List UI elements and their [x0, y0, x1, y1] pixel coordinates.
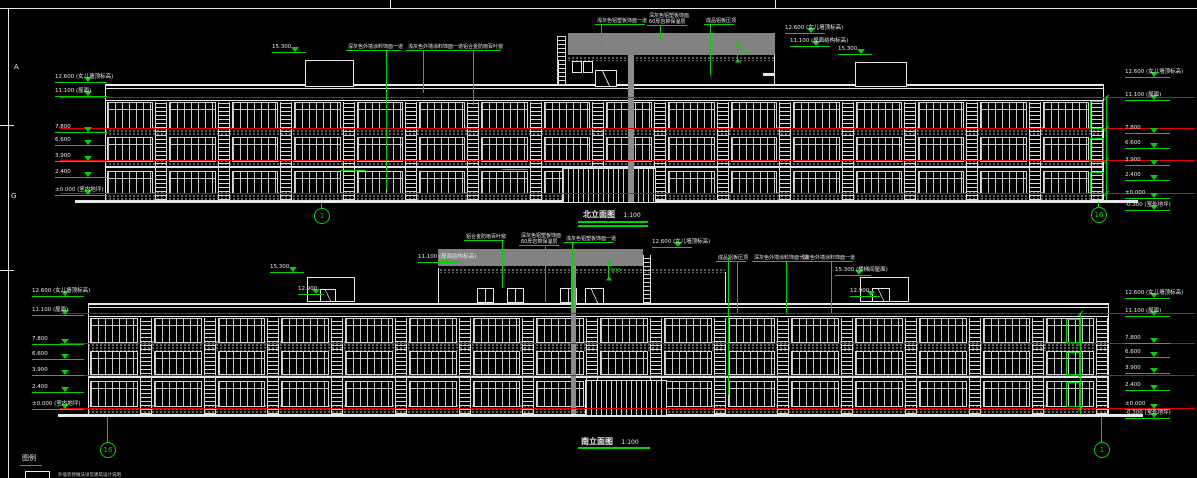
north-facade-window: [107, 102, 153, 129]
south-facade-louver-strip: [969, 318, 981, 414]
south-level-left-7-line: [32, 409, 84, 410]
south-facade-parapet-line-2: [88, 307, 1108, 308]
north-facade-window: [856, 137, 902, 162]
south-facade-window: [983, 318, 1031, 343]
north-facade-window: [107, 137, 153, 162]
north-title-scale: 1:100: [623, 212, 640, 219]
south-facade-window: [281, 351, 329, 375]
south-roofmark-parapet-line: [652, 247, 692, 248]
north-grid-bubble-right: 16: [1091, 207, 1107, 223]
frame-tick-left-1: [0, 125, 14, 126]
south-facade-window: [536, 318, 584, 343]
north-facade-window: [481, 102, 527, 129]
north-facade-window: [232, 102, 278, 129]
north-level-right-6-text: 2.400: [1125, 172, 1141, 178]
south-dim-block: [1066, 352, 1080, 375]
north-level-right-4-line: [1125, 148, 1170, 149]
south-level-left-2-line: [32, 315, 84, 316]
south-level-left-3-symbol: [61, 339, 69, 344]
north-level-left-6-text: 2.400: [55, 169, 71, 175]
south-level-left-5-line: [32, 375, 84, 376]
south-facade-window: [664, 318, 712, 343]
south-facade-window: [281, 318, 329, 343]
north-roof-dim-arrow-top: [735, 44, 741, 48]
north-annotation-left-3-leader-line: [473, 50, 474, 105]
north-level-left-4-symbol: [84, 140, 92, 145]
north-title: 北立面图 1:100: [583, 209, 641, 220]
north-facade-window: [980, 102, 1026, 129]
north-facade-window: [481, 171, 527, 194]
south-level-right-8-line: [1125, 418, 1170, 419]
north-level-left-7-line: [55, 195, 107, 196]
south-annotation-b-3-underline: [798, 261, 853, 262]
south-roofmark-roof-line: [418, 262, 458, 263]
south-grid-bubble-left-stem: [107, 417, 108, 442]
north-roof-hatch-strip: [568, 57, 775, 61]
north-roofmark-leftbox-symbol: [291, 47, 299, 52]
south-facade-window: [154, 381, 202, 407]
south-facade-window: [345, 351, 393, 375]
north-level-left-3-symbol: [84, 127, 92, 132]
north-facade-parapet-line-2: [105, 88, 1103, 89]
north-facade-window: [918, 102, 964, 129]
south-facade-window: [600, 318, 648, 343]
frame-left-line: [8, 8, 9, 478]
south-level-right-7-text: ±0.000: [1125, 401, 1145, 407]
south-annotation-b-1-leader-line: [737, 261, 738, 313]
north-facade-louver-strip: [530, 102, 542, 200]
south-facade-louver-strip: [140, 318, 152, 414]
north-level-right-7-line: [1125, 198, 1170, 199]
south-facade-louver-strip: [841, 318, 853, 414]
south-facade-window: [855, 318, 903, 343]
north-facade-window: [357, 102, 403, 129]
north-level-right-2-text: 11.100 (屋面): [1125, 92, 1161, 98]
south-roof-door: [585, 288, 604, 304]
north-annotation-center-3-text: 成品铝板压顶: [706, 18, 736, 24]
south-roofmark-rightbox-top-line: [835, 275, 871, 276]
north-facade-window: [980, 171, 1026, 194]
north-facade-window: [232, 137, 278, 162]
frame-tick-top-2: [775, 0, 776, 9]
south-grid-bubble-right-stem: [1101, 417, 1102, 442]
north-roof-tick: [763, 73, 775, 76]
north-level-right-5-symbol: [1150, 160, 1158, 165]
south-facade-window: [919, 351, 967, 375]
north-level-right-3-line: [1125, 133, 1170, 134]
south-facade-window: [90, 351, 138, 375]
south-annotation-b-1-underline: [716, 261, 746, 262]
north-facade-window: [419, 171, 465, 194]
south-grid-bubble-left: 16: [100, 442, 116, 458]
north-facade-window: [544, 102, 590, 129]
south-facade-window: [473, 381, 521, 407]
north-annotation-left-1-underline: [346, 50, 401, 51]
north-facade-window: [357, 137, 403, 162]
north-facade-window: [856, 171, 902, 194]
north-annotation-left-3-text: 铝合金防雨百叶窗: [463, 44, 503, 50]
south-facade-window: [409, 381, 457, 407]
south-title: 南立面图 1:100: [581, 436, 639, 447]
north-level-right-4-text: 6.600: [1125, 140, 1141, 146]
north-facade-left-edge: [105, 84, 106, 203]
south-level-right-3-symbol: [1150, 338, 1158, 343]
north-level-right-5-text: 3.900: [1125, 157, 1141, 163]
north-dim-chain-line: [1106, 96, 1107, 200]
south-roof-dim-value: 600: [611, 268, 621, 274]
south-roofmark-leftbox-top-text: 15.300: [270, 264, 289, 270]
frame-tick-left-2: [0, 270, 14, 271]
south-level-left-4-text: 6.600: [32, 351, 48, 357]
south-level-right-6-text: 2.400: [1125, 382, 1141, 388]
north-roof-window-2: [583, 61, 593, 73]
south-facade-level-line-red: [60, 408, 1195, 409]
south-title-scale: 1:100: [621, 439, 638, 446]
north-facade-window: [294, 102, 340, 129]
south-roofmark-leftbox-top-symbol: [289, 267, 297, 272]
north-facade-window: [668, 102, 714, 129]
north-facade-window: [668, 171, 714, 194]
south-facade-window: [536, 351, 584, 375]
south-roofmark-leftbox-door-line: [298, 294, 324, 295]
north-roof-door: [595, 70, 617, 87]
south-facade-floor-line: [88, 376, 1108, 378]
north-facade-louver-strip: [405, 102, 417, 200]
north-level-left-3-text: 7.800: [55, 124, 71, 130]
north-roof-box-left: [305, 60, 354, 87]
south-facade-window: [345, 381, 393, 407]
south-facade-window: [791, 318, 839, 343]
legend-underline: [20, 465, 42, 466]
south-entrance: [585, 380, 667, 416]
south-annotation-b-3-leader-line: [831, 261, 832, 313]
south-annotation-a-1-text: 铝合金防雨百叶窗: [466, 234, 506, 240]
south-facade-louver-strip: [777, 318, 789, 414]
south-level-left-6-symbol: [61, 387, 69, 392]
south-facade-level-line-red: [60, 375, 1195, 376]
south-annotation-b-1-text: 成品铝板压顶: [718, 255, 748, 261]
north-facade-window: [731, 171, 777, 194]
south-facade-window: [855, 351, 903, 375]
south-facade-window: [218, 381, 266, 407]
south-level-left-7-text: ±0.000 (室内地坪): [32, 401, 80, 407]
north-facade-window: [1043, 102, 1089, 129]
south-level-left-4-symbol: [61, 354, 69, 359]
frame-zone-label-a: A: [14, 64, 19, 70]
north-facade-window: [793, 171, 839, 194]
north-facade-window: [169, 137, 215, 162]
south-roof-window-2: [507, 288, 524, 303]
south-level-right-5-line: [1125, 373, 1170, 374]
north-roof-dim-arrow-bottom: [735, 59, 741, 63]
frame-tick-top-1: [390, 0, 391, 9]
north-facade-window: [793, 137, 839, 162]
south-level-left-1-line: [32, 296, 84, 297]
north-annotation-center-1-text: 浅灰色铝塑板饰面一道: [597, 18, 647, 24]
north-roofmark-parapet-line: [785, 33, 825, 34]
south-facade-window: [154, 351, 202, 375]
south-roof-dim-arrow-bottom: [606, 277, 612, 281]
north-facade-louver-strip: [343, 102, 355, 200]
south-level-right-5-text: 3.900: [1125, 365, 1141, 371]
north-grid-bubble-left: 1: [314, 208, 330, 224]
north-roofmark-roof-line: [790, 46, 830, 47]
south-title-underline: [578, 447, 650, 449]
north-roofmark-parapet-text: 12.600 (女儿墙顶标高): [785, 25, 843, 31]
south-level-right-6-symbol: [1150, 385, 1158, 390]
south-level-left-5-text: 3.900: [32, 367, 48, 373]
north-facade-level-line-red: [60, 128, 1195, 129]
north-facade-window: [169, 102, 215, 129]
north-roofmark-rightbox-symbol: [857, 49, 865, 54]
north-level-left-2-line: [55, 96, 107, 97]
south-facade-window: [664, 381, 712, 407]
south-facade-louver-strip: [905, 318, 917, 414]
south-facade-window: [90, 381, 138, 407]
south-level-right-2-line: [1125, 316, 1170, 317]
north-annotation-left-2-text: 浅灰色外墙涂料饰面一道: [408, 44, 463, 50]
south-level-left-6-text: 2.400: [32, 384, 48, 390]
south-facade-window: [791, 381, 839, 407]
north-title-underline-1: [578, 221, 648, 223]
north-facade-window: [856, 102, 902, 129]
south-roofmark-parapet-text: 12.600 (女儿墙顶标高): [652, 239, 710, 245]
south-level-right-8-text: -0.300 (室外地坪): [1125, 410, 1171, 416]
south-annotation-a-2-leader-line: [545, 245, 546, 302]
north-facade-window: [918, 137, 964, 162]
south-level-right-1-text: 12.600 (女儿墙顶标高): [1125, 290, 1183, 296]
south-facade-louver-strip: [331, 318, 343, 414]
north-facade-window: [918, 171, 964, 194]
north-level-right-8-text: -0.300 (室外地坪): [1125, 202, 1171, 208]
north-facade-louver-strip: [1029, 102, 1041, 200]
south-facade-window: [154, 318, 202, 343]
north-level-left-4-line: [55, 145, 107, 146]
north-level-right-3-text: 7.800: [1125, 125, 1141, 131]
south-level-left-1-text: 12.600 (女儿墙顶标高): [32, 288, 90, 294]
north-facade-window: [357, 171, 403, 194]
north-annotation-left-2-leader-line: [423, 50, 424, 93]
south-facade-window: [473, 318, 521, 343]
south-dim-chain-line: [1080, 313, 1081, 414]
south-roof-wall-right: [725, 272, 726, 303]
north-level-left-3-line: [55, 132, 107, 133]
south-level-right-2-text: 11.100 (屋面): [1125, 308, 1161, 314]
south-facade-louver-strip: [395, 318, 407, 414]
frame-top-line: [0, 8, 1197, 9]
north-facade-window: [1043, 171, 1089, 194]
north-door-mark-1: [340, 170, 366, 171]
south-level-right-6-line: [1125, 390, 1170, 391]
north-facade-louver-strip: [904, 102, 916, 200]
south-annotation-a-2-text2: 60厚岩棉保温层: [521, 239, 557, 245]
south-level-right-1-line: [1125, 298, 1170, 299]
north-level-left-6-symbol: [84, 172, 92, 177]
north-level-right-6-line: [1125, 180, 1170, 181]
cad-sheet: A G 60015.30015.30012.600 (女儿墙顶标高)11.100…: [0, 0, 1197, 478]
north-level-right-5-line: [1125, 165, 1170, 166]
south-annotation-a-1-leader-line: [502, 240, 503, 288]
north-level-right-7-text: ±0.000: [1125, 190, 1145, 196]
south-facade-window: [409, 318, 457, 343]
north-entrance: [562, 168, 656, 203]
north-facade-louver-strip: [654, 102, 666, 200]
south-annotation-b-2-leader-line: [786, 261, 787, 313]
south-facade-louver-strip: [267, 318, 279, 414]
south-title-text: 南立面图: [581, 437, 613, 446]
north-level-right-1-text: 12.600 (女儿墙顶标高): [1125, 69, 1183, 75]
north-facade-level-line-red: [60, 193, 1195, 194]
north-level-left-2-text: 11.100 (屋面): [55, 88, 91, 94]
south-facade-left-edge: [88, 303, 89, 417]
south-level-left-6-line: [32, 392, 84, 393]
south-facade-window: [218, 318, 266, 343]
south-facade-window: [728, 381, 776, 407]
north-facade-window: [169, 171, 215, 194]
north-annotation-center-3-underline: [704, 24, 734, 25]
south-facade-louver-strip: [459, 318, 471, 414]
north-level-right-2-line: [1125, 100, 1170, 101]
south-facade-window: [90, 318, 138, 343]
north-level-left-6-line: [55, 177, 107, 178]
north-annotation-center-1-underline: [595, 24, 645, 25]
north-facade-window: [731, 137, 777, 162]
south-facade-sill-line: [88, 316, 1108, 317]
north-level-right-7-symbol: [1150, 193, 1158, 198]
north-roofmark-leftbox-line: [272, 52, 306, 53]
north-title-text: 北立面图: [583, 210, 615, 219]
north-facade-louver-strip: [779, 102, 791, 200]
north-facade-louver-strip: [966, 102, 978, 200]
south-facade-level-line-red: [60, 343, 1195, 344]
north-annotation-left-1-text: 深灰色外墙涂料饰面一道: [348, 44, 403, 50]
south-annotation-a-2-underline: [519, 245, 559, 246]
south-annotation-a-3-leader-line: [572, 242, 573, 310]
north-level-left-1-line: [55, 82, 107, 83]
north-annotation-center-1-leader-line: [601, 24, 602, 53]
north-facade-window: [1043, 137, 1089, 162]
frame-zone-label-g: G: [11, 193, 16, 199]
south-facade-window: [791, 351, 839, 375]
north-annotation-left-3-underline: [461, 50, 501, 51]
north-title-underline-2: [578, 225, 648, 227]
south-dim-block: [1066, 319, 1080, 343]
north-level-left-5-symbol: [84, 156, 92, 161]
north-level-right-4-symbol: [1150, 143, 1158, 148]
north-roofmark-roof-text: 11.100 (屋面结构标高): [790, 38, 848, 44]
south-level-right-3-text: 7.800: [1125, 335, 1141, 341]
south-level-left-4-line: [32, 359, 84, 360]
south-dim-block: [1066, 382, 1080, 407]
north-level-right-1-line: [1125, 77, 1170, 78]
south-facade-window: [983, 351, 1031, 375]
north-facade-level-line-red: [60, 160, 1195, 161]
south-level-right-5-symbol: [1150, 368, 1158, 373]
north-facade-window: [731, 102, 777, 129]
south-roof-dim-arrow-top: [606, 262, 612, 266]
north-level-left-5-text: 3.900: [55, 153, 71, 159]
south-grid-bubble-right: 1: [1094, 442, 1110, 458]
south-facade-window: [600, 351, 648, 375]
north-level-right-6-symbol: [1150, 175, 1158, 180]
north-roofmark-rightbox-text: 15.300: [838, 46, 857, 52]
north-annotation-left-2-underline: [406, 50, 461, 51]
north-annotation-center-2-leader-line: [660, 25, 661, 40]
north-facade-window: [793, 102, 839, 129]
south-level-left-3-text: 7.800: [32, 336, 48, 342]
north-roofmark-rightbox-line: [838, 54, 872, 55]
south-facade-window: [983, 381, 1031, 407]
north-facade-louver-strip: [280, 102, 292, 200]
south-roofmark-rightbox-top-text: 15.300 (楼梯间屋面): [835, 267, 888, 273]
south-facade-louver-strip: [714, 318, 726, 414]
south-facade-window: [473, 351, 521, 375]
south-facade-louver-strip: [1096, 318, 1108, 414]
north-annotation-center-2-text2: 60厚岩棉保温层: [649, 19, 685, 25]
south-annotation-a-1-underline: [464, 240, 504, 241]
north-annotation-center-2-underline: [647, 25, 687, 26]
south-facade-window: [218, 351, 266, 375]
north-level-right-3-symbol: [1150, 128, 1158, 133]
north-facade-window: [668, 137, 714, 162]
south-facade-window: [728, 351, 776, 375]
north-level-left-7-text: ±0.000 (室内地坪): [55, 187, 103, 193]
north-facade-window: [481, 137, 527, 162]
south-facade-window: [728, 318, 776, 343]
north-facade-louver-strip: [842, 102, 854, 200]
north-roof-dim-value: 600: [740, 50, 750, 56]
south-facade-louver-strip: [204, 318, 216, 414]
legend-swatch-box: [25, 471, 50, 478]
north-facade-louver-strip: [218, 102, 230, 200]
north-facade-window: [294, 171, 340, 194]
north-facade-window: [980, 137, 1026, 162]
north-facade-sill-line: [105, 100, 1103, 101]
north-annotation-center-3-leader-line: [710, 24, 711, 75]
south-facade-window: [919, 318, 967, 343]
north-facade-window: [544, 137, 590, 162]
south-level-right-4-symbol: [1150, 352, 1158, 357]
north-roof-box-right: [855, 62, 907, 87]
south-level-left-2-text: 11.100 (屋面): [32, 307, 68, 313]
north-dim-block: [1090, 101, 1104, 129]
north-roof-window-1: [572, 61, 582, 73]
south-facade-louver-strip: [1032, 318, 1044, 414]
south-facade-level-line-red: [60, 313, 1195, 314]
south-level-right-3-line: [1125, 343, 1170, 344]
south-annotation-a-3-text: 浅灰色铝塑板饰面一道: [566, 236, 616, 242]
south-facade-window: [536, 381, 584, 407]
south-roof-box-left-door: [320, 289, 336, 302]
south-roofmark-roof-text: 11.100 (屋面结构标高): [418, 254, 476, 260]
south-facade-right-edge: [1108, 303, 1109, 417]
south-level-left-3-line: [32, 344, 84, 345]
south-roof-wall-left: [438, 268, 439, 303]
south-roofmark-rightbox-door-line: [850, 296, 880, 297]
south-level-left-5-symbol: [61, 370, 69, 375]
south-level-right-4-text: 6.600: [1125, 349, 1141, 355]
north-roof-ladder: [557, 36, 566, 85]
north-annotation-left-1-leader-line: [386, 50, 387, 190]
north-dim-block: [1090, 172, 1104, 194]
legend-note: 外墙装修做法详见建筑设计说明: [58, 473, 121, 478]
north-door-mark-2: [502, 169, 528, 170]
north-facade-louver-strip: [155, 102, 167, 200]
south-roofmark-rightbox-door-text: 12.900: [850, 288, 869, 294]
north-dim-block: [1090, 138, 1104, 162]
south-facade-window: [664, 351, 712, 375]
north-roofmark-leftbox-text: 15.300: [272, 44, 291, 50]
